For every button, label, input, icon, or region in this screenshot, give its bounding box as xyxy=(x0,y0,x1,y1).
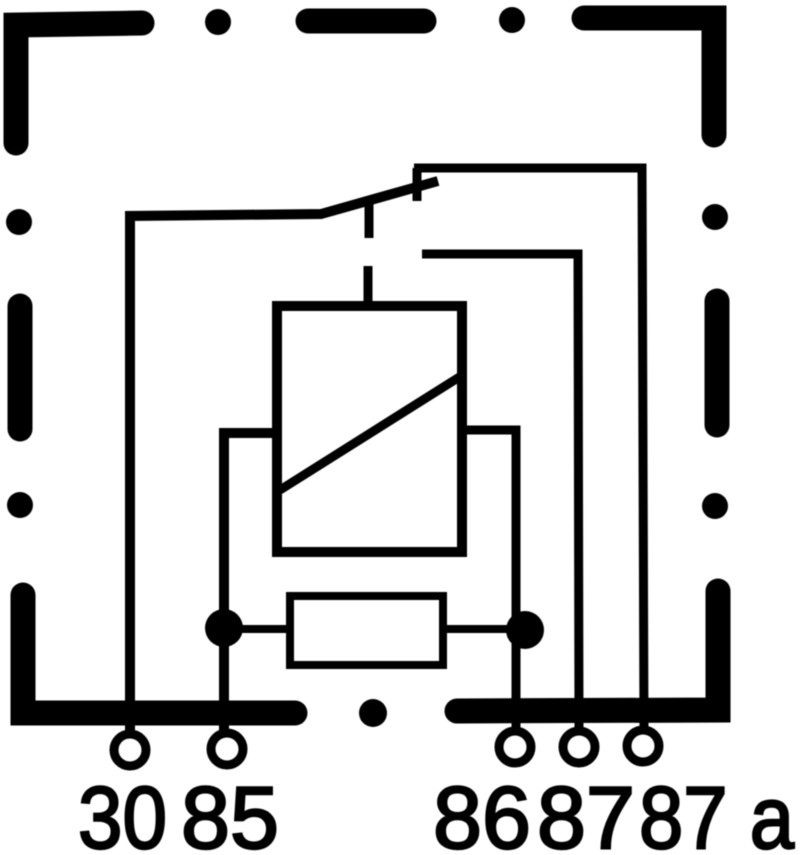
svg-text:30: 30 xyxy=(78,768,167,855)
svg-text:87: 87 xyxy=(537,768,635,855)
svg-text:85: 85 xyxy=(181,768,279,855)
svg-text:86: 86 xyxy=(433,768,531,855)
svg-text:87 a: 87 a xyxy=(639,768,794,855)
